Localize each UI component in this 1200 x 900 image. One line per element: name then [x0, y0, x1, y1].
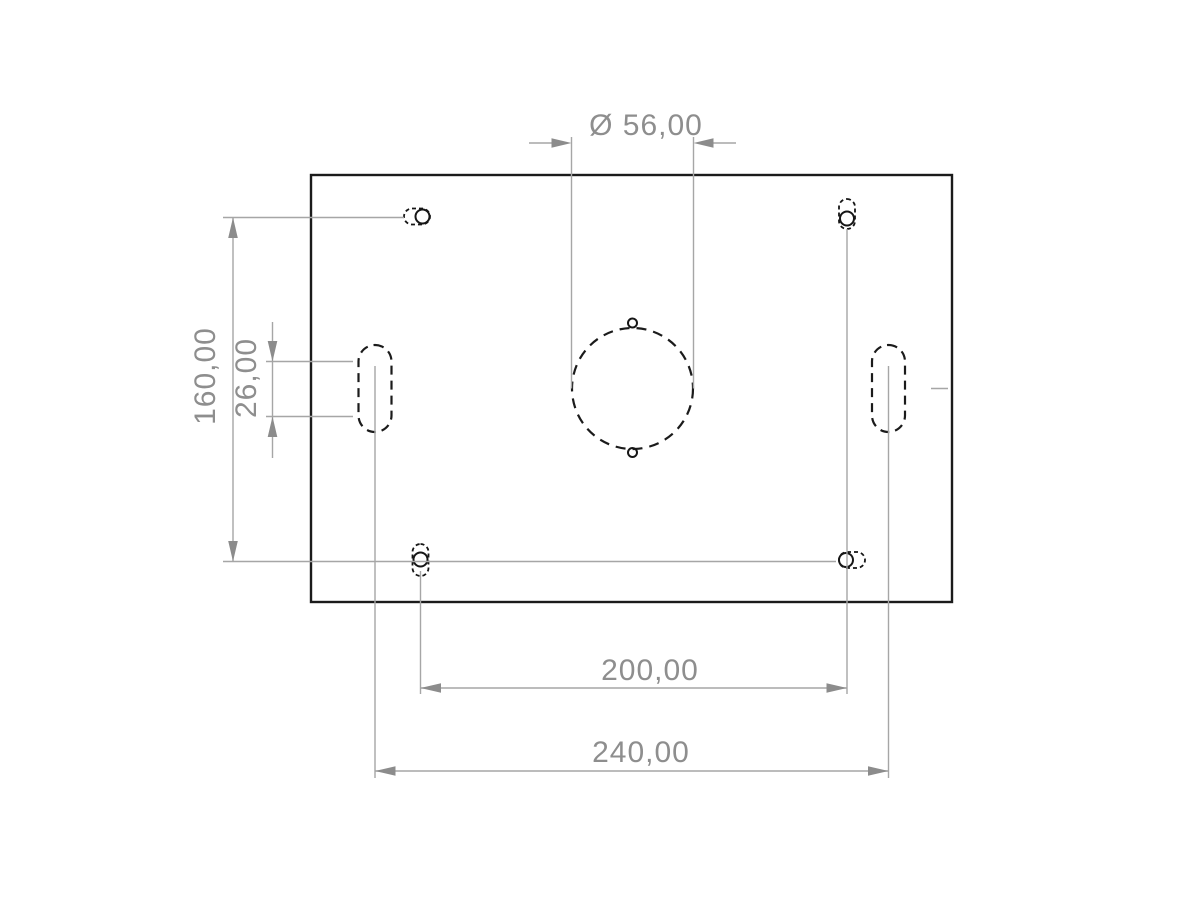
dim240-label: 240,00 — [592, 736, 690, 769]
dimension-240: 240,00 — [375, 736, 889, 776]
drawing-canvas: Ø 56,00 160,00 26,00 200,00 — [0, 0, 1200, 900]
dim200-label: 200,00 — [601, 654, 699, 687]
dim56-label: Ø 56,00 — [589, 109, 703, 142]
hole-top-left-circle — [416, 210, 430, 224]
center-hole-dashed-circle — [572, 328, 693, 449]
dim240-arrow-right-icon — [868, 766, 889, 776]
dimension-160: 160,00 — [189, 218, 836, 562]
dim56-arrow-left-icon — [552, 138, 572, 148]
hole-bottom-left-circle — [414, 553, 428, 567]
plate-outline — [311, 175, 952, 602]
dim26-arrow-down-icon — [268, 341, 278, 362]
hole-bottom-right-circle — [839, 553, 853, 567]
hole-top-right — [839, 199, 855, 229]
engineering-drawing: Ø 56,00 160,00 26,00 200,00 — [0, 0, 1200, 900]
dim160-arrow-top-icon — [228, 218, 238, 239]
dim26-label: 26,00 — [230, 338, 263, 418]
dim160-arrow-bottom-icon — [228, 541, 238, 562]
dimension-26: 26,00 — [230, 322, 353, 458]
hole-top-right-circle — [840, 212, 854, 226]
dim160-label: 160,00 — [189, 327, 222, 425]
dim200-arrow-left-icon — [421, 683, 442, 693]
dim26-arrow-up-icon — [268, 417, 278, 438]
dimension-diameter-56: Ø 56,00 — [529, 109, 736, 389]
dimension-200: 200,00 — [421, 229, 848, 694]
dim200-arrow-right-icon — [827, 683, 848, 693]
hole-top-left — [404, 209, 430, 225]
center-top-pin-hole — [628, 319, 637, 328]
dim240-arrow-left-icon — [375, 766, 396, 776]
hole-bottom-right — [839, 552, 865, 568]
